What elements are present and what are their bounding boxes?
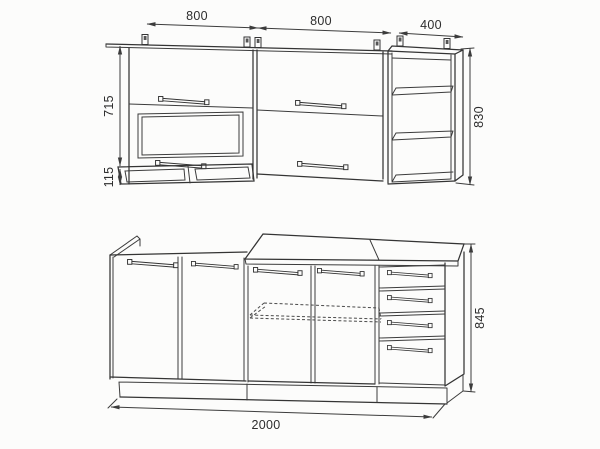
drawer-handle <box>387 345 432 352</box>
door-handle <box>253 267 302 275</box>
dim-label-wall-center-width: 800 <box>310 14 332 28</box>
dim-label-wall-left-width: 800 <box>186 9 208 23</box>
drawer-handle <box>387 320 432 327</box>
dim-label-base-total-width: 2000 <box>251 418 280 432</box>
dim-wall-right-width: 400 <box>399 18 463 37</box>
base-doors-center-section <box>248 266 381 384</box>
mounting-bracket-icon <box>374 40 380 50</box>
dim-wall-door-height: 715 <box>102 46 120 166</box>
dim-wall-total-height: 830 <box>456 48 486 185</box>
mounting-bracket-icon <box>142 35 148 45</box>
dim-wall-center-width: 800 <box>258 14 391 33</box>
drawer-handle <box>387 270 432 277</box>
countertop <box>245 234 464 266</box>
dim-label-wall-door-height: 715 <box>102 95 116 117</box>
shelf <box>392 131 453 140</box>
mounting-brackets <box>142 35 450 51</box>
base-cabinets-elevation: 845 2000 <box>108 234 487 432</box>
drawer-handle <box>387 295 432 302</box>
door-handle <box>128 259 178 267</box>
dim-base-total-width: 2000 <box>108 399 445 432</box>
shelf-bottom-panel <box>388 172 455 184</box>
dim-base-total-height: 845 <box>463 244 487 392</box>
door-handle <box>191 261 238 269</box>
mounting-bracket-icon <box>397 36 403 46</box>
dim-label-base-total-height: 845 <box>473 307 487 329</box>
dim-label-wall-niche-height: 115 <box>102 167 116 188</box>
shelf <box>392 86 453 95</box>
mounting-bracket-icon <box>244 37 250 47</box>
dim-wall-niche-height: 115 <box>102 167 120 188</box>
mounting-bracket-icon <box>255 38 261 48</box>
door-handle <box>296 100 346 108</box>
base-doors-left-section <box>110 236 247 381</box>
wall-cabinet-center-800 <box>257 100 383 181</box>
dim-label-wall-total-height: 830 <box>472 106 486 128</box>
dim-wall-left-width: 800 <box>147 9 258 28</box>
wall-cabinet-left-800 <box>118 48 257 184</box>
glass-door-panel <box>138 112 243 158</box>
wall-cabinets-top-edge <box>106 44 392 54</box>
dim-label-wall-right-width: 400 <box>420 18 442 32</box>
door-handle <box>156 160 206 168</box>
drawer-unit <box>379 252 464 386</box>
door-handle <box>159 96 209 104</box>
wall-cabinets-elevation: 800 800 400 715 115 830 <box>102 9 486 187</box>
wall-shelf-unit-400 <box>383 46 463 184</box>
door-handle <box>317 268 364 276</box>
kitchen-cabinet-technical-drawing: 800 800 400 715 115 830 <box>0 0 600 449</box>
door-handle <box>298 161 348 169</box>
mounting-bracket-icon <box>444 39 450 49</box>
